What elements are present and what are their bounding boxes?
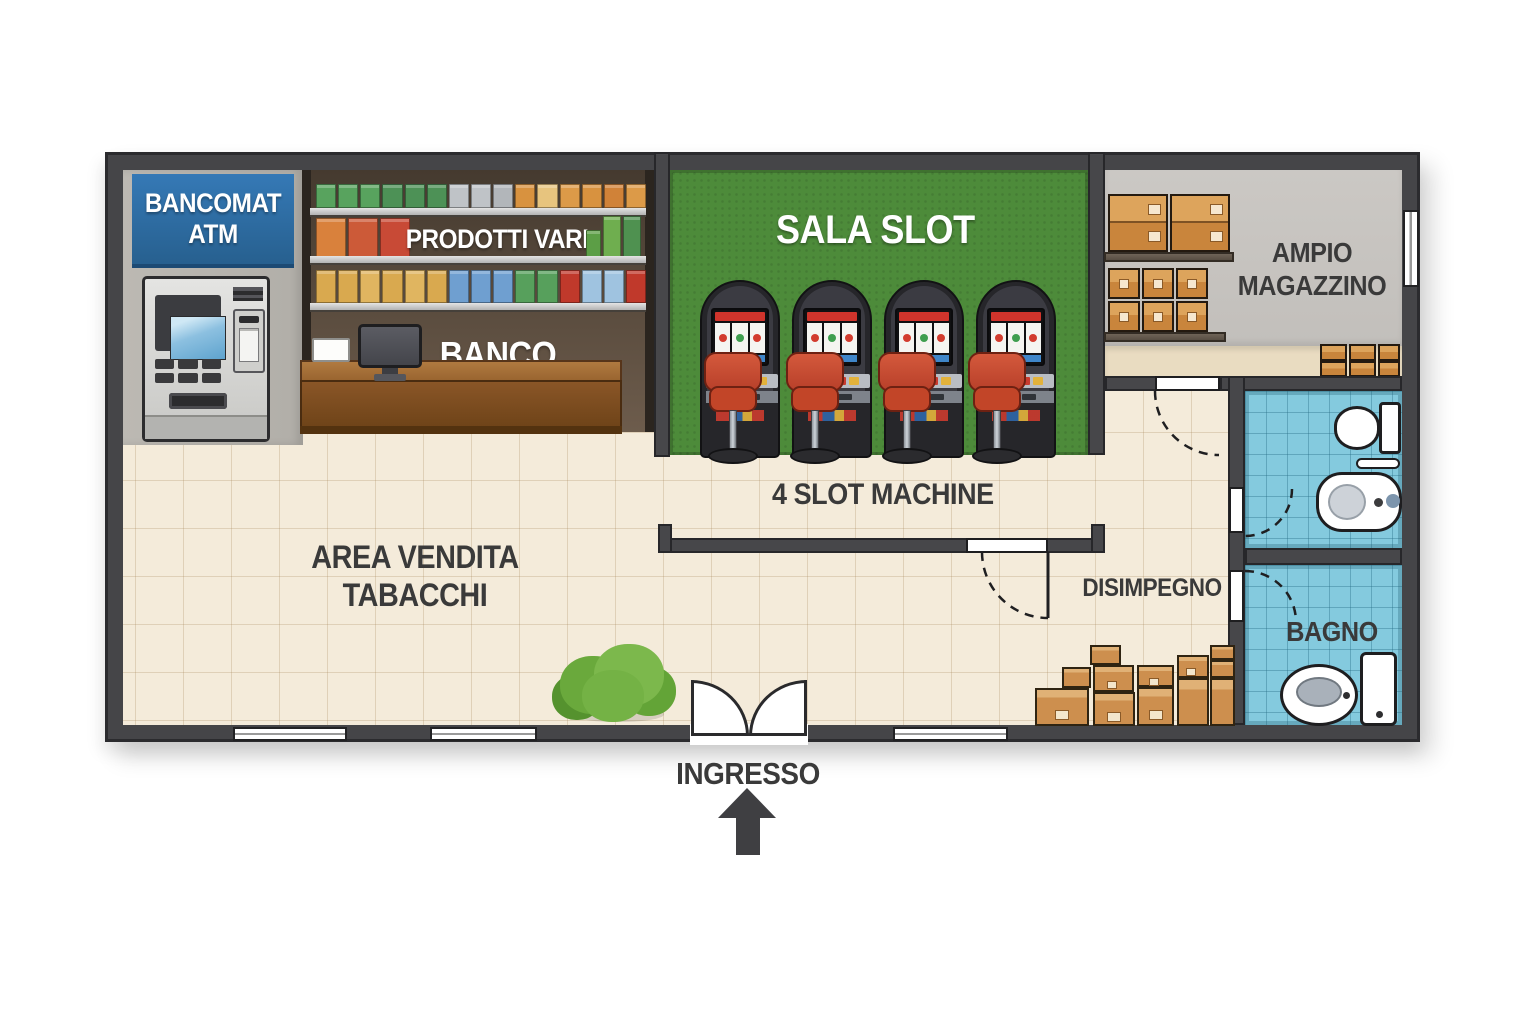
box-icon: [1137, 665, 1174, 687]
storage-label-line2: MAGAZZINO: [1231, 269, 1393, 302]
box-icon: [1093, 665, 1134, 692]
stool-icon: [968, 352, 1026, 470]
bancomat-sign-line2: ATM: [132, 219, 294, 250]
stool-icon: [704, 352, 762, 470]
pos-monitor-base: [374, 374, 406, 381]
bathroom-label: BAGNO: [1285, 616, 1379, 648]
storage-small-box-icon: [1349, 344, 1376, 361]
product-icon: [427, 270, 447, 303]
shelf-products-row-mid-right: [586, 216, 646, 257]
box-icon: [1035, 688, 1089, 726]
wc-room-door: [1229, 487, 1244, 533]
slot-area-door: [966, 538, 1048, 553]
box-icon: [1062, 667, 1091, 688]
product-icon: [604, 184, 624, 208]
toilet-icon: [1280, 664, 1358, 726]
product-icon: [382, 184, 402, 208]
partition-wall-endcap: [658, 524, 672, 553]
product-icon: [626, 270, 646, 303]
atm-screen-icon: [155, 295, 221, 351]
shelf-products-row-mid-left: [316, 218, 416, 257]
product-icon: [537, 184, 557, 208]
product-icon: [382, 270, 402, 303]
storage-small-box-icon: [1349, 361, 1376, 377]
product-icon: [560, 184, 580, 208]
product-icon: [582, 184, 602, 208]
storage-small-box-icon: [1320, 344, 1347, 361]
entrance-label: INGRESSO: [669, 756, 827, 792]
product-icon: [427, 184, 447, 208]
sales-area-label-line2: TABACCHI: [303, 576, 528, 614]
counter-base: [300, 426, 622, 434]
product-icon: [582, 270, 602, 303]
product-icon: [515, 184, 535, 208]
product-icon: [405, 184, 425, 208]
box-icon: [1210, 660, 1235, 678]
storage-box-icon: [1176, 301, 1208, 332]
product-icon: [348, 218, 378, 257]
shelf-side-panel: [645, 170, 654, 432]
product-icon: [586, 230, 601, 257]
box-icon: [1177, 678, 1209, 726]
atm-keys-row: [155, 359, 221, 369]
product-icon: [515, 270, 535, 303]
toilet-cistern-icon: [1360, 652, 1397, 726]
atm-receipt-icon: [239, 328, 259, 362]
slot-room-label: SALA SLOT: [776, 208, 974, 253]
storage-box-icon: [1142, 301, 1174, 332]
product-icon: [604, 270, 624, 303]
product-icon: [493, 270, 513, 303]
product-icon: [493, 184, 513, 208]
product-icon: [338, 184, 358, 208]
bancomat-atm-sign: BANCOMAT ATM: [132, 174, 294, 268]
paper-icon: [312, 338, 350, 362]
atm-cash-slot-icon: [169, 393, 227, 409]
bathroom-divider-wall: [1245, 548, 1402, 565]
storage-bottom-wall: [1220, 376, 1402, 391]
storage-box-icon: [1108, 301, 1140, 332]
sales-area-label: AREA VENDITA TABACCHI: [303, 538, 528, 614]
shelf-products-row-top: [316, 184, 646, 208]
window: [893, 727, 1008, 741]
slot-room-left-wall: [654, 152, 670, 457]
product-icon: [471, 270, 491, 303]
product-icon: [626, 184, 646, 208]
bancomat-sign-line1: BANCOMAT: [132, 188, 294, 219]
plant-icon: [552, 640, 680, 728]
product-icon: [623, 216, 641, 257]
atm-side-panel: [233, 309, 265, 373]
slot-room-right-wall: [1088, 152, 1105, 455]
sink-column-icon: [1379, 402, 1401, 454]
pos-monitor-icon: [358, 324, 422, 368]
sales-area-label-line1: AREA VENDITA: [303, 538, 528, 576]
counter-front: [300, 380, 622, 430]
shelf-products-row-bottom: [316, 270, 646, 303]
storage-bottom-wall: [1105, 376, 1157, 391]
storage-box-icon: [1176, 268, 1208, 299]
storage-door: [1155, 376, 1220, 391]
storage-box-icon: [1170, 194, 1230, 252]
atm-machine-icon: [142, 276, 270, 442]
window: [430, 727, 537, 741]
bathroom-door: [1229, 570, 1244, 622]
stool-icon: [878, 352, 936, 470]
storage-small-box-icon: [1378, 344, 1400, 361]
storage-small-box-icon: [1378, 361, 1400, 377]
storage-shelf-board: [1104, 252, 1234, 262]
window: [233, 727, 347, 741]
shelf-bar: [310, 303, 646, 312]
product-icon: [338, 270, 358, 303]
product-icon: [316, 184, 336, 208]
box-icon: [1090, 645, 1121, 665]
box-icon: [1137, 687, 1174, 726]
storage-small-box-icon: [1320, 361, 1347, 377]
product-icon: [471, 184, 491, 208]
product-icon: [316, 270, 336, 303]
product-icon: [560, 270, 580, 303]
product-icon: [603, 216, 621, 257]
product-icon: [316, 218, 346, 257]
partition-wall-endcap: [1091, 524, 1105, 553]
storage-box-icon: [1108, 194, 1168, 252]
hallway-label: DISIMPEGNO: [1080, 574, 1224, 603]
storage-box-icon: [1142, 268, 1174, 299]
towel-shelf-icon: [1356, 458, 1400, 469]
product-icon: [537, 270, 557, 303]
atm-card-slot-icon: [239, 316, 259, 323]
product-icon: [360, 270, 380, 303]
product-icon: [360, 184, 380, 208]
product-icon: [405, 270, 425, 303]
product-icon: [449, 184, 469, 208]
storage-label-line1: AMPIO: [1231, 236, 1393, 269]
atm-base: [145, 415, 267, 439]
storage-label: AMPIO MAGAZZINO: [1231, 236, 1393, 302]
storage-box-icon: [1108, 268, 1140, 299]
entrance-arrow-shaft: [736, 817, 760, 855]
window: [1403, 210, 1419, 287]
product-icon: [449, 270, 469, 303]
counter-top: [300, 360, 622, 380]
floor-plan-canvas: BANCOMAT ATM PRODOTTI VARI BANCO SALA SL…: [0, 0, 1536, 1024]
stool-icon: [786, 352, 844, 470]
atm-vent-icon: [233, 287, 263, 301]
box-icon: [1210, 645, 1235, 660]
atm-keys-row: [155, 373, 221, 383]
sink-icon: [1334, 406, 1380, 450]
shelf-label: PRODOTTI VARI: [406, 224, 582, 255]
box-icon: [1093, 692, 1135, 726]
slot-machine-count-label: 4 SLOT MACHINE: [772, 478, 988, 512]
box-icon: [1177, 655, 1209, 678]
bidet-icon: [1316, 472, 1402, 532]
storage-shelf-board: [1104, 332, 1226, 342]
box-icon: [1210, 678, 1235, 726]
shelf-bar: [310, 256, 646, 265]
entrance-arrow-icon: [718, 788, 776, 818]
